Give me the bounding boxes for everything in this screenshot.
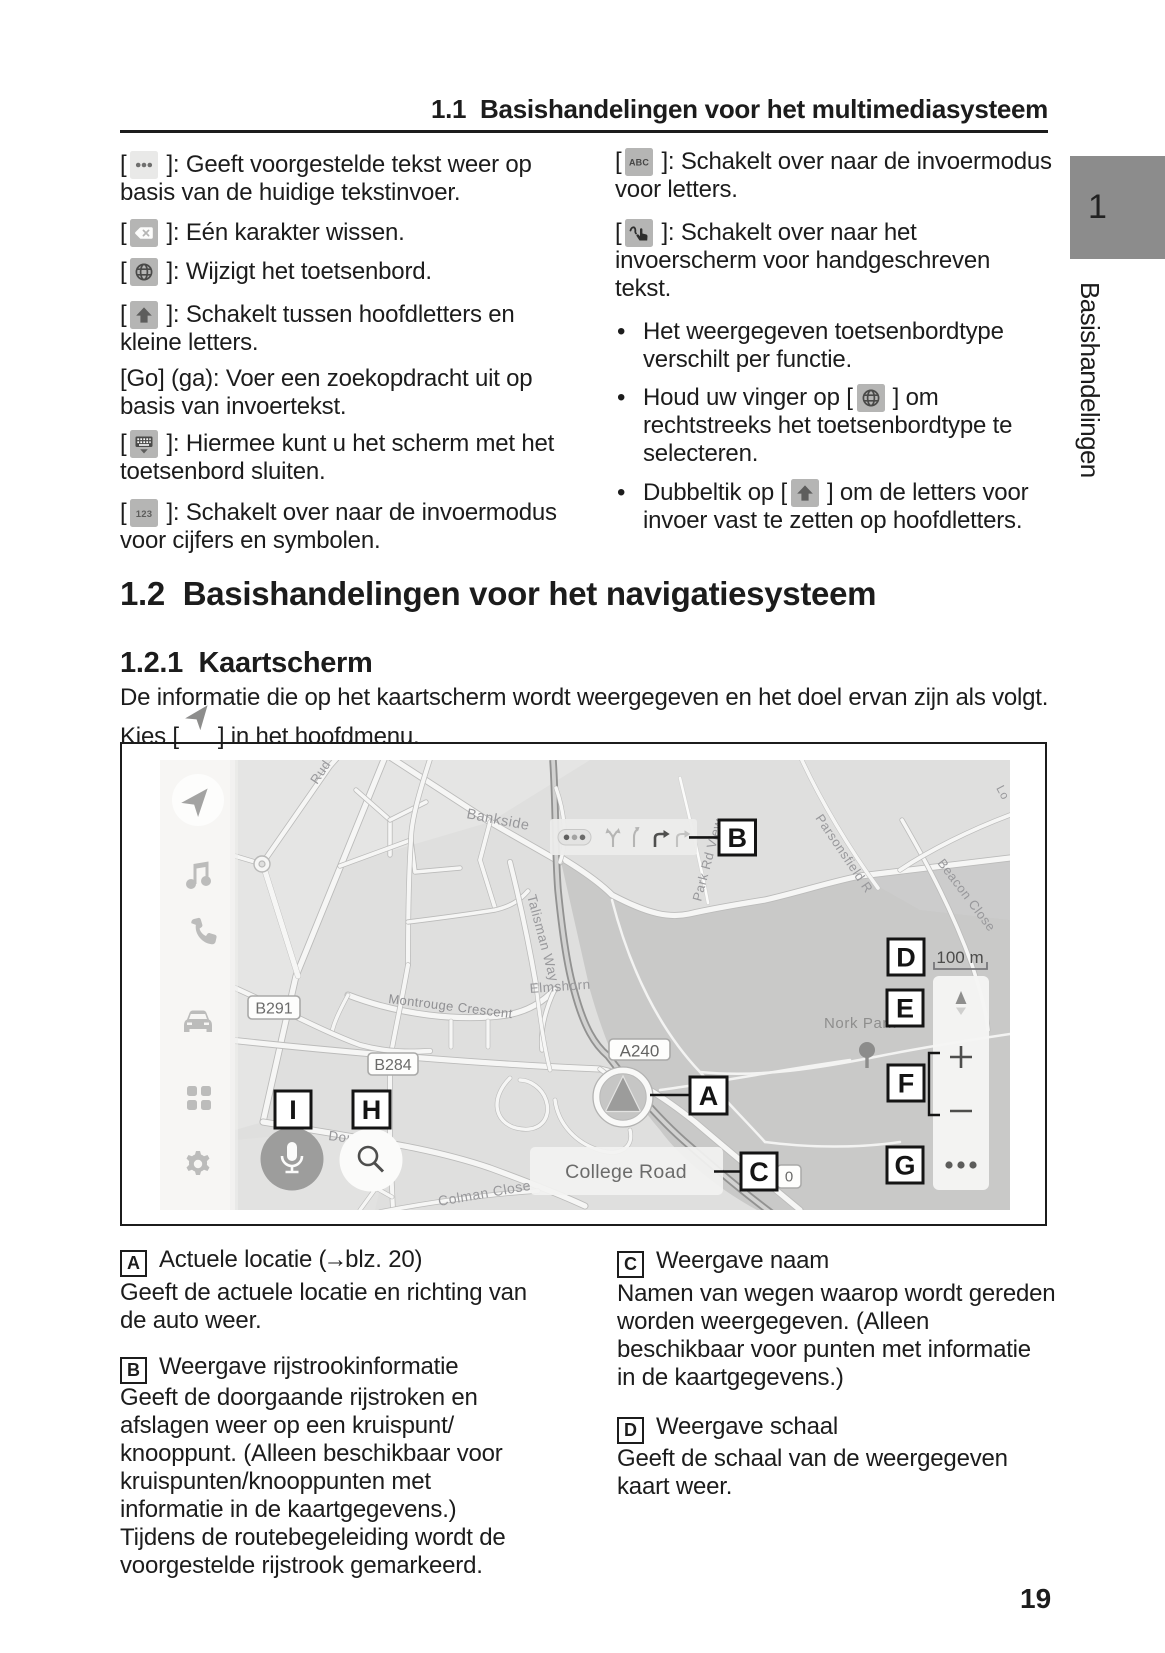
svg-text:B: B [728, 823, 748, 853]
svg-text:College Road: College Road [565, 1161, 687, 1183]
svg-text:100 m: 100 m [936, 948, 983, 967]
svg-text:G: G [894, 1151, 915, 1181]
svg-text:123: 123 [136, 509, 152, 520]
svg-text:D: D [896, 943, 916, 973]
svg-text:E: E [896, 994, 914, 1024]
svg-text:C: C [749, 1157, 769, 1187]
svg-text:I: I [289, 1095, 297, 1125]
svg-text:A: A [699, 1081, 719, 1111]
svg-text:Nork Park: Nork Park [824, 1015, 896, 1032]
svg-text:A240: A240 [620, 1042, 660, 1061]
svg-text:H: H [362, 1095, 382, 1125]
svg-text:B291: B291 [255, 1000, 292, 1017]
svg-text:B284: B284 [374, 1057, 411, 1074]
svg-text:0: 0 [785, 1169, 793, 1186]
svg-text:ABC: ABC [629, 158, 649, 168]
svg-text:F: F [898, 1069, 915, 1099]
